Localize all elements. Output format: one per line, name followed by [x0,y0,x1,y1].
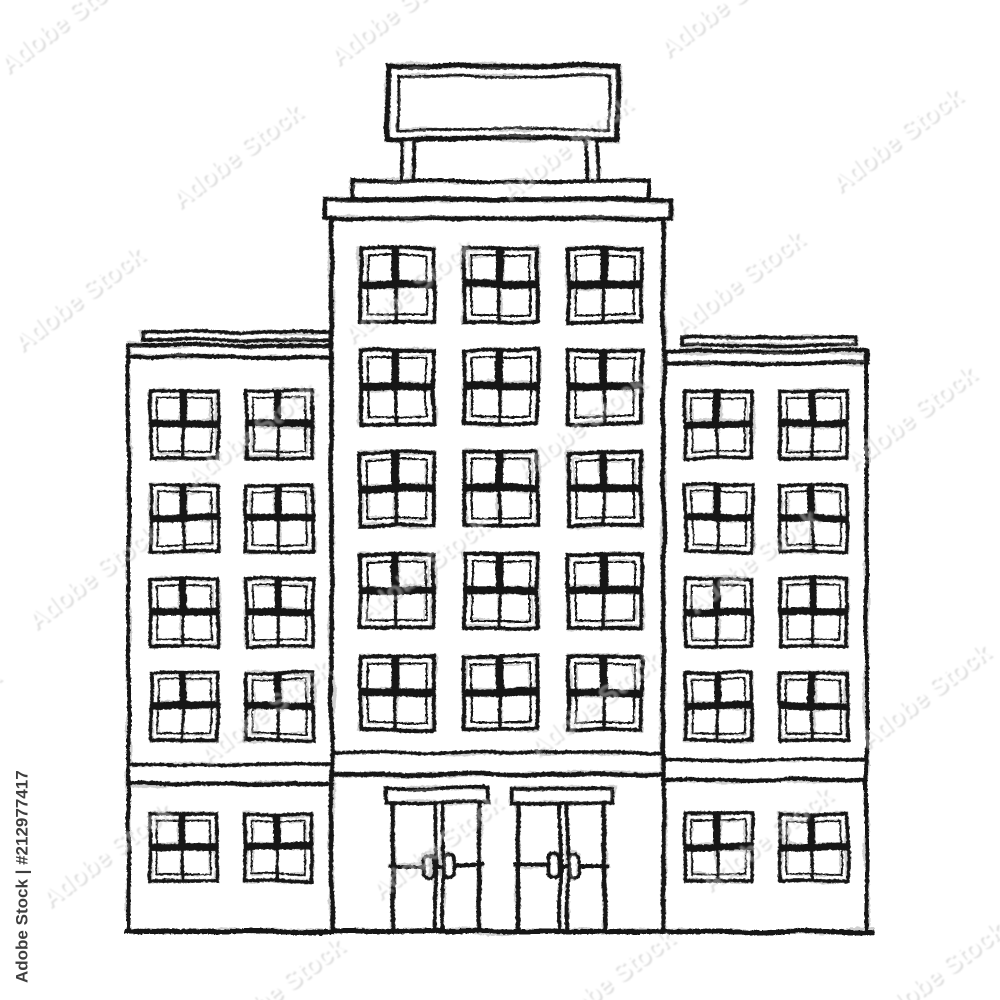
svg-text:Adobe Stock | #212977417: Adobe Stock | #212977417 [13,770,32,983]
